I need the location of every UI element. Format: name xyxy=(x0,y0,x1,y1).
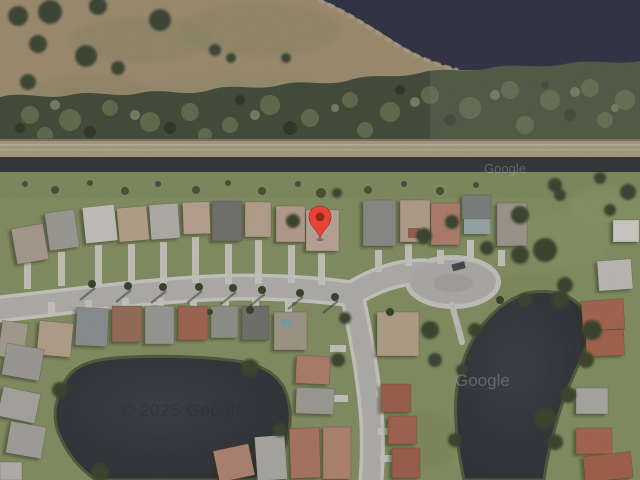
satellite-map[interactable]: Google Google © 2025 Google xyxy=(0,0,640,480)
watermark-google-faint-right: Google xyxy=(455,371,510,390)
watermark-google-faint-top: Google xyxy=(484,161,526,176)
pin-shadow xyxy=(317,238,324,241)
watermark-copyright: © 2025 Google xyxy=(121,400,245,420)
pin-dot xyxy=(316,213,325,222)
satellite-map-viewport[interactable]: Google Google © 2025 Google xyxy=(0,0,640,480)
